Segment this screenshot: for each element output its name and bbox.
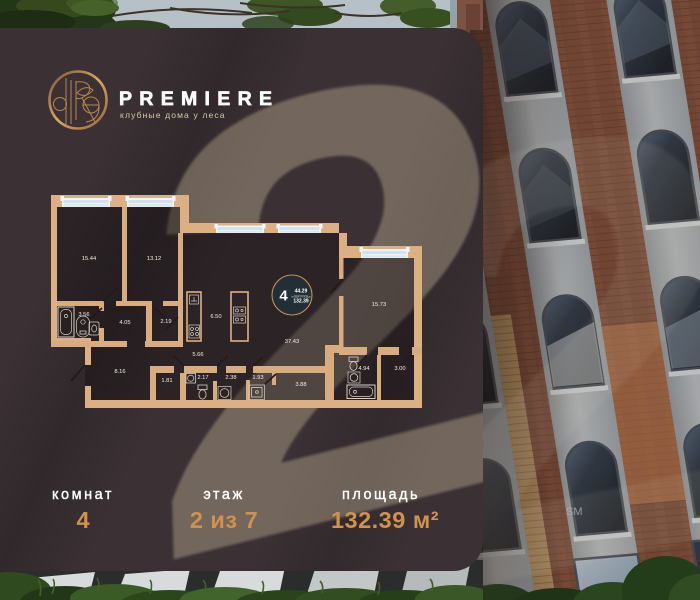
svg-text:15.44: 15.44 bbox=[82, 256, 97, 262]
svg-text:2.38: 2.38 bbox=[225, 375, 236, 381]
svg-text:44.29: 44.29 bbox=[295, 289, 308, 295]
svg-text:3.56: 3.56 bbox=[78, 312, 89, 318]
svg-text:15.73: 15.73 bbox=[372, 302, 387, 308]
svg-text:5.66: 5.66 bbox=[192, 352, 203, 358]
svg-text:132.39: 132.39 bbox=[293, 299, 309, 305]
svg-text:8.16: 8.16 bbox=[114, 369, 125, 375]
svg-text:3.00: 3.00 bbox=[394, 366, 405, 372]
svg-text:6.50: 6.50 bbox=[210, 314, 221, 320]
svg-text:37.43: 37.43 bbox=[285, 339, 300, 345]
svg-text:4: 4 bbox=[279, 288, 288, 305]
svg-text:2.17: 2.17 bbox=[197, 375, 208, 381]
svg-text:4.05: 4.05 bbox=[119, 320, 130, 326]
svg-text:2.19: 2.19 bbox=[160, 319, 171, 325]
svg-text:1.81: 1.81 bbox=[161, 378, 172, 384]
svg-text:1.93: 1.93 bbox=[252, 375, 263, 381]
svg-text:3.88: 3.88 bbox=[295, 382, 306, 388]
svg-text:13.12: 13.12 bbox=[147, 256, 162, 262]
svg-text:4.94: 4.94 bbox=[358, 366, 370, 372]
